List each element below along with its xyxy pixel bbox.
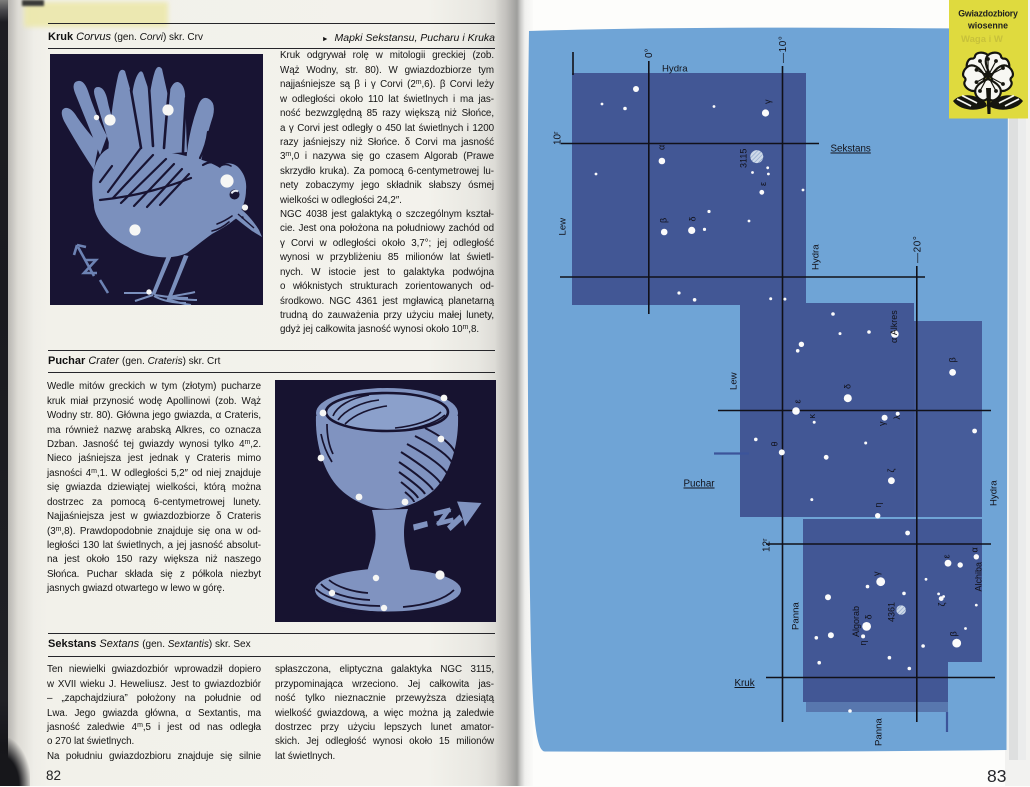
- svg-text:δ: δ: [864, 614, 874, 619]
- svg-text:Sekstans: Sekstans: [831, 144, 871, 155]
- svg-text:Panna: Panna: [791, 602, 802, 630]
- svg-text:ζ: ζ: [937, 603, 947, 607]
- svg-text:0°: 0°: [644, 48, 655, 58]
- svg-text:wiosenne: wiosenne: [967, 21, 1008, 31]
- svg-text:Algorab: Algorab: [851, 606, 861, 637]
- svg-text:κ: κ: [807, 414, 817, 419]
- svg-text:γ: γ: [877, 421, 887, 426]
- svg-text:Hydra: Hydra: [811, 244, 822, 270]
- svg-text:Kruk: Kruk: [735, 678, 755, 689]
- svg-text:Hydra: Hydra: [662, 64, 688, 75]
- svg-text:β: β: [949, 631, 959, 636]
- svg-text:Waga i W: Waga i W: [961, 34, 1003, 45]
- svg-text:—10°: —10°: [778, 35, 789, 63]
- svg-text:ε: ε: [942, 554, 952, 558]
- svg-text:ε: ε: [758, 182, 768, 186]
- svg-text:3115: 3115: [739, 149, 749, 168]
- svg-text:η: η: [873, 502, 883, 507]
- svg-text:β: β: [948, 357, 958, 362]
- svg-text:Panna: Panna: [874, 718, 885, 746]
- svg-text:γ: γ: [763, 99, 773, 104]
- svg-text:Puchar: Puchar: [684, 479, 716, 490]
- svg-text:ζ: ζ: [886, 469, 896, 473]
- svg-text:γ: γ: [872, 571, 882, 576]
- svg-text:δ: δ: [688, 216, 698, 221]
- svg-text:—20°: —20°: [913, 235, 924, 263]
- svg-text:4361: 4361: [887, 602, 897, 622]
- svg-text:Lew: Lew: [558, 218, 569, 236]
- svg-text:θ: θ: [770, 441, 780, 446]
- svg-text:Lew: Lew: [729, 372, 740, 390]
- svg-text:Gwiazdozbiory: Gwiazdozbiory: [958, 9, 1018, 19]
- svg-text:δ: δ: [843, 384, 853, 389]
- svg-text:α: α: [970, 547, 980, 552]
- svg-text:10ʳ: 10ʳ: [553, 131, 564, 145]
- svg-text:λ: λ: [892, 415, 902, 420]
- svg-text:Alchiba: Alchiba: [974, 562, 984, 592]
- svg-text:Hydra: Hydra: [989, 480, 1000, 506]
- svg-text:ε: ε: [793, 399, 803, 403]
- svg-text:α: α: [657, 145, 667, 150]
- svg-text:α Alkres: α Alkres: [889, 310, 899, 343]
- svg-text:12ʳ: 12ʳ: [762, 538, 773, 552]
- svg-text:η: η: [858, 640, 868, 645]
- svg-text:β: β: [659, 218, 669, 223]
